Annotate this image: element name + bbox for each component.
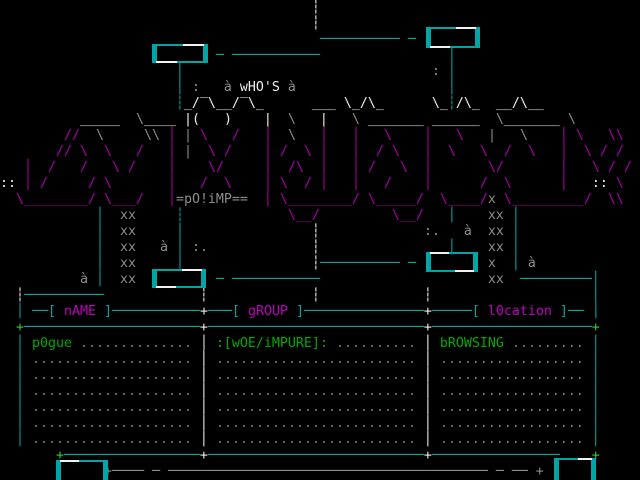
art-segment: ─ xyxy=(408,256,416,271)
art-segment: │ xyxy=(424,160,432,175)
art-segment: \ xyxy=(104,144,112,159)
art-segment: │ xyxy=(24,176,32,191)
art-segment: xx xyxy=(120,240,136,255)
art-segment: + xyxy=(592,320,600,335)
art-segment: │ xyxy=(24,160,32,175)
art-segment: \\ xyxy=(608,192,624,207)
art-segment: │ xyxy=(96,240,104,255)
art-segment: \ xyxy=(384,128,392,143)
art-segment: ┆ xyxy=(16,288,24,303)
art-segment: ......................... xyxy=(216,384,416,399)
grid-row: _____ \____ |( ) | \ | \ _______ ______ … xyxy=(0,112,640,128)
art-segment: // xyxy=(64,128,80,143)
art-segment: /\_ xyxy=(456,96,480,111)
art-segment: xx xyxy=(120,224,136,239)
art-segment: │ xyxy=(424,432,432,447)
art-segment: │ xyxy=(264,176,272,191)
art-segment: ┆ xyxy=(176,96,184,111)
grid-row: ┆_/‾\__/‾\_ ___ \_/\_ \_┆/\_ __/\__ xyxy=(0,96,640,112)
art-segment: \_____/ xyxy=(368,192,424,207)
box-highlight xyxy=(60,460,79,462)
art-segment: .................. xyxy=(440,368,584,383)
art-segment: ───────── xyxy=(520,272,592,287)
art-segment: \ xyxy=(352,112,360,127)
art-segment: .............. xyxy=(80,336,192,351)
art-segment: │ xyxy=(592,272,600,287)
art-segment: | xyxy=(184,144,192,159)
art-segment: | xyxy=(184,112,192,127)
art-segment: \/ xyxy=(488,160,504,175)
grid-row: // \ \\ │ | \ / │ \ │ │ \ │ \ | \ │ \ \\ xyxy=(0,128,640,144)
art-segment: │ xyxy=(592,384,600,399)
art-segment: \__/ xyxy=(288,208,320,223)
art-segment: ─ xyxy=(216,272,224,287)
art-segment: / xyxy=(280,144,288,159)
art-segment: à xyxy=(288,80,296,95)
art-segment: [ xyxy=(472,304,480,319)
art-segment: xx xyxy=(488,224,504,239)
art-segment: \ xyxy=(288,112,296,127)
art-segment: / xyxy=(304,176,312,191)
art-segment: │ xyxy=(200,400,208,415)
art-segment: │ xyxy=(448,80,456,95)
art-segment: à xyxy=(160,240,168,255)
art-segment: \ xyxy=(400,160,408,175)
art-segment: + xyxy=(200,304,208,319)
art-segment: │ xyxy=(264,144,272,159)
art-segment: .................... xyxy=(32,400,192,415)
art-segment: │ xyxy=(16,432,24,447)
art-segment: ─── xyxy=(208,304,232,319)
art-segment: │ xyxy=(200,432,208,447)
art-segment: ─ xyxy=(216,48,224,63)
art-segment: │ xyxy=(16,336,24,351)
art-segment: \ xyxy=(136,112,144,127)
art-segment: [ xyxy=(232,304,240,319)
art-segment: \ xyxy=(528,144,536,159)
box-highlight xyxy=(182,269,202,271)
grid-row: │ : │ xyxy=(0,64,640,80)
art-segment: │ xyxy=(512,208,520,223)
art-segment: │ xyxy=(512,224,520,239)
grid-row: │ p0gue .............. │ :[wOE/iMPURE]: … xyxy=(0,336,640,352)
art-segment: .................. xyxy=(440,432,584,447)
user-location: bROWSING xyxy=(440,336,504,351)
art-segment: ......................... xyxy=(216,352,416,367)
art-segment: │ xyxy=(16,304,24,319)
grid-row: │ xx ┆ \__/ \__/ │ xx │ xyxy=(0,208,640,224)
art-segment: / xyxy=(368,160,376,175)
art-segment: ____ xyxy=(144,112,176,127)
art-segment: :. xyxy=(424,224,440,239)
art-segment: | xyxy=(264,112,272,127)
art-segment: │ xyxy=(16,352,24,367)
art-segment: │ xyxy=(592,416,600,431)
art-segment: │ xyxy=(512,240,520,255)
art-segment: ── xyxy=(32,304,48,319)
art-segment: .................. xyxy=(440,400,584,415)
connector-box-bottom-left xyxy=(56,460,108,480)
art-segment: ─────────── xyxy=(232,272,320,287)
grid-row: │ .................... │ ...............… xyxy=(0,384,640,400)
art-segment: .................... xyxy=(32,416,192,431)
art-segment: / xyxy=(128,160,136,175)
art-segment: .................... xyxy=(32,368,192,383)
art-segment: .................... xyxy=(32,432,192,447)
art-segment: ─────────────────────────── xyxy=(208,448,424,463)
art-segment: ___ xyxy=(312,96,336,111)
art-segment: │ xyxy=(560,176,568,191)
art-segment: ] xyxy=(104,304,112,319)
art-segment: xx xyxy=(488,272,504,287)
art-segment: │ xyxy=(16,384,24,399)
grid-row: ─ ─────────── │ xyxy=(0,48,640,64)
art-segment: ─ xyxy=(408,32,416,47)
art-segment: │ xyxy=(352,176,360,191)
art-segment: \ xyxy=(584,144,592,159)
art-segment: : xyxy=(192,80,200,95)
art-segment: \ xyxy=(96,128,104,143)
grid-row: │ / / \ / │ \/ │ /\ │ │ / \ │ \/ │ \ / / xyxy=(0,160,640,176)
art-segment: \____/ xyxy=(440,192,488,207)
art-segment: ───── xyxy=(432,304,472,319)
art-segment: .................. xyxy=(440,416,584,431)
art-segment: ] xyxy=(560,304,568,319)
art-segment: __/\__ xyxy=(496,96,544,111)
art-segment: / xyxy=(136,144,144,159)
art-segment: ┆ xyxy=(312,288,320,303)
art-segment: xx xyxy=(120,208,136,223)
art-segment: ┆ xyxy=(424,288,432,303)
art-segment: │ xyxy=(352,144,360,159)
art-segment: \ xyxy=(392,144,400,159)
art-segment: ......................... xyxy=(216,368,416,383)
art-segment: ┆ xyxy=(200,288,208,303)
art-segment: │ xyxy=(592,288,600,303)
art-segment: │ xyxy=(176,80,184,95)
art-segment: │ xyxy=(264,128,272,143)
art-segment: | xyxy=(488,128,496,143)
art-segment: │ xyxy=(592,432,600,447)
art-segment: x xyxy=(488,256,496,271)
box-highlight xyxy=(430,46,450,48)
art-segment: ─ xyxy=(496,464,504,479)
art-segment: _____ xyxy=(80,112,120,127)
art-segment: \________/ xyxy=(280,192,360,207)
art-segment: xx xyxy=(488,208,504,223)
grid-row: ────────── ─ xyxy=(0,32,640,48)
art-segment: │ xyxy=(592,400,600,415)
art-segment: xx xyxy=(488,240,504,255)
art-segment: ──── xyxy=(112,464,144,479)
grid-row: \________/ \___/ │=pO!iMP== │ \________/… xyxy=(0,192,640,208)
art-segment: / xyxy=(616,144,624,159)
grid-row: à │ xx ─ ─────────── xx ─────────│ xyxy=(0,272,640,288)
art-segment: │ xyxy=(592,368,600,383)
grid-row: │ xx à │ :. ┆ │ xx │ xyxy=(0,240,640,256)
art-segment: │ xyxy=(168,144,176,159)
art-segment: / xyxy=(200,176,208,191)
art-segment: │ xyxy=(512,256,520,271)
art-segment: │ xyxy=(560,144,568,159)
art-segment: │ xyxy=(176,64,184,79)
whos-label: wHO'S xyxy=(240,80,280,95)
art-segment: / xyxy=(88,176,96,191)
grid-row: │ .................... │ ...............… xyxy=(0,416,640,432)
box-highlight xyxy=(455,270,474,272)
art-segment: │ xyxy=(320,128,328,143)
art-segment: xx xyxy=(120,272,136,287)
art-segment: │ xyxy=(424,144,432,159)
header-location-label: l0cation xyxy=(488,304,552,319)
art-segment: \__/ xyxy=(392,208,424,223)
art-segment: / xyxy=(232,128,240,143)
art-segment: / xyxy=(624,160,632,175)
art-segment: \ xyxy=(448,144,456,159)
art-segment: │ xyxy=(96,272,104,287)
art-segment: \ xyxy=(520,128,528,143)
art-segment: │ xyxy=(560,128,568,143)
art-segment: ┆ xyxy=(312,16,320,31)
art-segment: \ xyxy=(616,176,624,191)
art-segment: / xyxy=(376,144,384,159)
art-segment: ─────────── xyxy=(232,48,320,63)
box-highlight xyxy=(456,27,476,29)
art-segment: .......... xyxy=(336,336,416,351)
art-segment: : xyxy=(432,64,440,79)
art-segment: │ xyxy=(352,128,360,143)
header-name-label: nAME xyxy=(64,304,96,319)
art-segment: \ xyxy=(592,160,600,175)
grid-row: ┆ xyxy=(0,16,640,32)
art-segment: \________/ xyxy=(16,192,96,207)
art-segment: ......................... xyxy=(216,416,416,431)
art-segment: │ xyxy=(16,416,24,431)
grid-row: │ xx │ ┆ :. à xx │ xyxy=(0,224,640,240)
user-name: p0gue xyxy=(32,336,72,351)
art-segment: │ xyxy=(424,368,432,383)
art-segment: │ xyxy=(424,400,432,415)
art-segment: \\ xyxy=(144,128,160,143)
art-segment: ─────────── xyxy=(112,304,200,319)
grid-row: │ xx │ ┆────────── ─ x │ à xyxy=(0,256,640,272)
connector-box-top-right xyxy=(426,27,480,48)
art-segment: :: xyxy=(592,176,608,191)
art-segment: \ xyxy=(456,128,464,143)
art-segment: │ xyxy=(200,352,208,367)
art-segment: :: xyxy=(0,176,16,191)
art-segment: │ xyxy=(200,384,208,399)
art-segment: :. xyxy=(192,240,208,255)
art-segment: + xyxy=(200,320,208,335)
art-segment: \ xyxy=(80,144,88,159)
art-segment: ─────────────── xyxy=(304,304,424,319)
art-segment: à xyxy=(224,80,232,95)
art-segment: à xyxy=(80,272,88,287)
art-segment: │ xyxy=(200,336,208,351)
art-segment: | xyxy=(320,112,328,127)
art-segment: \ xyxy=(200,128,208,143)
art-segment: / xyxy=(224,144,232,159)
art-segment: │ xyxy=(320,160,328,175)
art-segment: │ xyxy=(200,368,208,383)
grid-row: // \ \ / │ | \ / │ / \ │ │ / \ │ \ \ / \… xyxy=(0,144,640,160)
art-segment: + xyxy=(16,320,24,335)
art-segment: │ xyxy=(168,176,176,191)
grid-row: │ : à wHO'S à │ xyxy=(0,80,640,96)
art-segment: ────────── xyxy=(24,288,104,303)
art-segment: + xyxy=(424,304,432,319)
art-segment: \/ xyxy=(208,160,224,175)
art-segment: │ xyxy=(168,192,176,207)
art-segment: │ xyxy=(96,224,104,239)
box-highlight xyxy=(430,252,449,254)
art-segment: ────────── xyxy=(320,256,400,271)
art-segment: ( xyxy=(192,112,200,127)
art-segment: \ xyxy=(208,144,216,159)
art-segment: / xyxy=(608,160,616,175)
art-segment: │ xyxy=(424,128,432,143)
art-segment: │ xyxy=(96,208,104,223)
grid-row: ┆────────── ┆ ┆ ┆ │ xyxy=(0,288,640,304)
art-segment: .................... xyxy=(32,352,192,367)
art-segment: │ xyxy=(448,48,456,63)
art-segment: \___/ xyxy=(104,192,144,207)
art-segment: │ xyxy=(320,144,328,159)
art-segment: │ xyxy=(448,208,456,223)
art-segment: ──────────────── xyxy=(432,448,560,463)
grid-row: │ .................... │ ...............… xyxy=(0,400,640,416)
art-segment: + xyxy=(424,320,432,335)
box-highlight xyxy=(578,458,592,460)
art-segment: │ xyxy=(424,416,432,431)
art-segment: │ xyxy=(560,160,568,175)
ansi-whos-online-screen: ┆ ┆ ────────── ─ ─ ─────────── │ │ xyxy=(0,0,640,480)
art-segment: \ xyxy=(104,176,112,191)
art-segment: \ xyxy=(296,160,304,175)
art-segment: / xyxy=(48,160,56,175)
art-segment: _______ xyxy=(504,112,560,127)
art-segment: ......................... xyxy=(216,432,416,447)
grid-row: │ .................... │ ...............… xyxy=(0,352,640,368)
art-segment: │ xyxy=(448,64,456,79)
art-segment: ┆ xyxy=(312,256,320,271)
art-segment: / xyxy=(80,160,88,175)
art-segment: xx xyxy=(120,256,136,271)
art-segment: \ xyxy=(112,160,120,175)
box-highlight xyxy=(156,286,176,288)
art-segment: \ xyxy=(504,176,512,191)
connector-box-bottom-right xyxy=(554,458,596,480)
art-segment: ) xyxy=(224,112,232,127)
art-segment: ─ xyxy=(152,464,160,479)
art-segment: │ xyxy=(16,400,24,415)
art-segment: .................. xyxy=(440,352,584,367)
art-segment: ┆ xyxy=(312,224,320,239)
art-segment: / xyxy=(504,144,512,159)
art-segment: .................. xyxy=(440,384,584,399)
grid-row: :: │ / / \ │ / \ │ \ / │ │ / │ / \ │ :: … xyxy=(0,176,640,192)
art-segment: │ xyxy=(592,336,600,351)
art-segment: │ xyxy=(264,192,272,207)
art-segment: à xyxy=(528,256,536,271)
art-segment: x xyxy=(488,192,496,207)
art-segment: \ xyxy=(304,144,312,159)
art-segment: / xyxy=(480,176,488,191)
art-segment: \ xyxy=(568,112,576,127)
art-segment: ──────────────────────────────────────── xyxy=(168,464,488,479)
art-segment: │ xyxy=(168,160,176,175)
art-segment: ] xyxy=(296,304,304,319)
art-segment: │ xyxy=(424,352,432,367)
art-segment: │ xyxy=(200,416,208,431)
art-segment: ......... xyxy=(512,336,584,351)
art-segment: // xyxy=(56,144,72,159)
art-segment: │ xyxy=(424,336,432,351)
art-segment: \ xyxy=(576,128,584,143)
grid-row: │ ──[ nAME ]───────────+───[ gROUP ]────… xyxy=(0,304,640,320)
art-segment: _______ xyxy=(368,112,424,127)
art-segment: ______ xyxy=(432,112,480,127)
art-segment: │ xyxy=(176,240,184,255)
grid-row: │ .................... │ ...............… xyxy=(0,368,640,384)
art-segment: ────────── xyxy=(320,32,400,47)
art-segment: \_ xyxy=(432,96,448,111)
art-segment: │ xyxy=(424,384,432,399)
header-group-label: gROUP xyxy=(248,304,288,319)
art-segment: ┆ xyxy=(176,208,184,223)
art-segment: \ xyxy=(280,176,288,191)
art-segment: │ xyxy=(264,160,272,175)
grid-row: ┆ xyxy=(0,0,640,16)
art-segment: ┆ xyxy=(312,0,320,15)
box-highlight xyxy=(183,44,204,46)
art-segment: / xyxy=(40,176,48,191)
art-segment: \_/\_ xyxy=(344,96,384,111)
art-segment: / xyxy=(288,160,296,175)
art-segment: | xyxy=(184,128,192,143)
connector-box-mid-right xyxy=(426,252,478,272)
art-segment: \\ xyxy=(608,128,624,143)
art-segment: ┆ xyxy=(312,240,320,255)
art-segment: \ xyxy=(224,176,232,191)
art-segment: \ xyxy=(496,112,504,127)
art-segment: \ xyxy=(288,128,296,143)
art-segment: \_________/ xyxy=(504,192,592,207)
art-segment: + xyxy=(424,448,432,463)
art-segment: ── xyxy=(568,304,584,319)
art-segment: + xyxy=(536,464,544,479)
art-segment: │ xyxy=(352,160,360,175)
connector-box-mid-left xyxy=(152,269,206,288)
art-segment: ─────────────────────────── xyxy=(208,320,424,335)
art-segment: à xyxy=(464,224,472,239)
art-segment: ──────────────────── xyxy=(432,320,592,335)
connector-box-top-left xyxy=(152,44,208,63)
user-group: :[wOE/iMPURE]: xyxy=(216,336,328,351)
art-segment: ┆ xyxy=(448,96,456,111)
art-segment: [ xyxy=(48,304,56,319)
art-segment: │ xyxy=(592,352,600,367)
art-segment: .................... xyxy=(32,384,192,399)
art-segment: │ xyxy=(592,304,600,319)
art-segment: │ xyxy=(320,176,328,191)
art-segment: │ xyxy=(168,128,176,143)
art-segment: │ xyxy=(16,368,24,383)
art-segment: ......................... xyxy=(216,400,416,415)
art-segment: ────────────────────── xyxy=(24,320,200,335)
grid-row: │ .................... │ ...............… xyxy=(0,432,640,448)
